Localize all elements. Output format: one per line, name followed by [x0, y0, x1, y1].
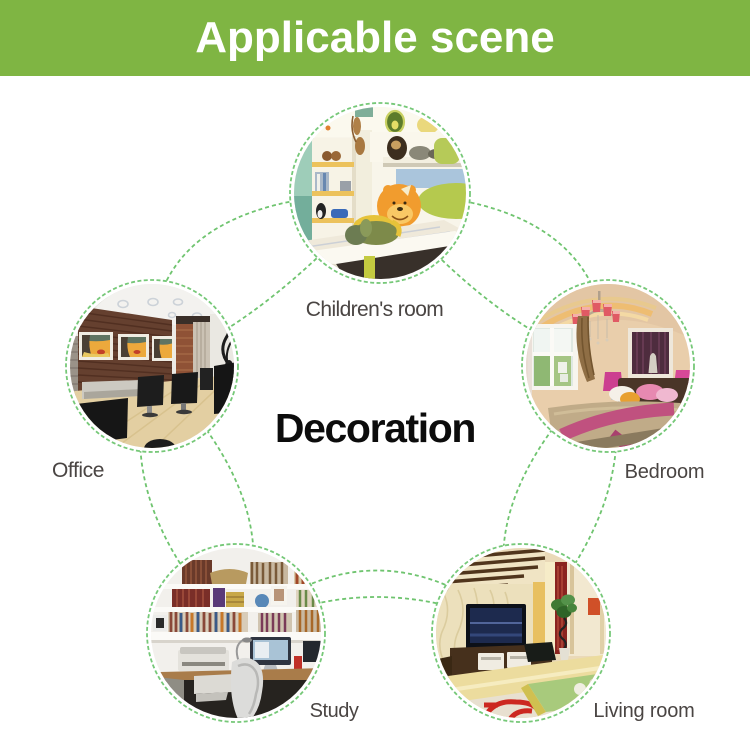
svg-text:Office: Office [52, 459, 104, 482]
svg-text:Applicable scene: Applicable scene [195, 13, 554, 62]
svg-text:Decoration: Decoration [275, 405, 475, 451]
svg-text:Children's room: Children's room [306, 298, 444, 321]
svg-text:Study: Study [310, 700, 359, 722]
svg-text:Living room: Living room [593, 700, 694, 722]
svg-text:Bedroom: Bedroom [625, 461, 705, 483]
